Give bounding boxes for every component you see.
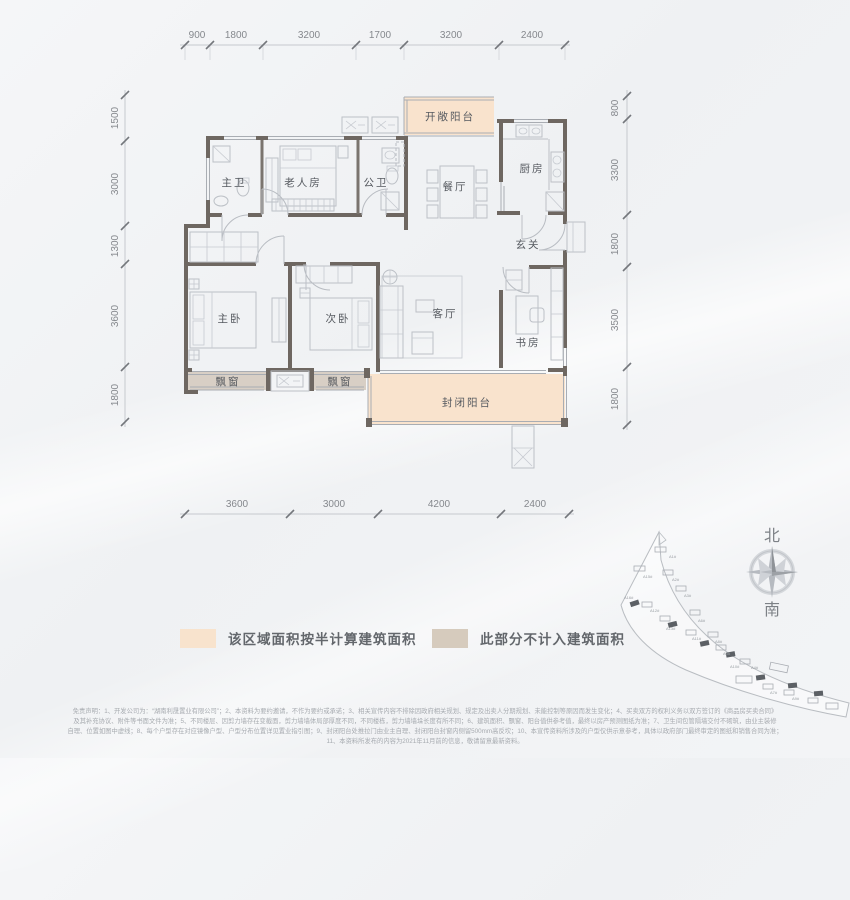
dim-bottom-3: 4200 <box>428 499 451 510</box>
legend-item-excluded: 此部分不计入建筑面积 <box>432 628 625 648</box>
site-building-label: A9# <box>792 696 800 701</box>
floorplan-page: 900 1800 3200 1700 3200 2400 1500 3000 1… <box>0 0 850 758</box>
room-label-study: 书房 <box>516 336 541 349</box>
site-building-label: A16# <box>624 595 634 600</box>
compass: 北 南 <box>746 527 798 619</box>
site-building-label: A10# <box>730 664 740 669</box>
dim-top-6: 2400 <box>521 30 544 41</box>
room-label-closed-balcony: 封闭阳台 <box>442 396 492 409</box>
legend-swatch-excluded <box>432 629 468 648</box>
room-label-kitchen: 厨房 <box>520 162 545 175</box>
dim-left-1: 1500 <box>110 106 121 129</box>
dimension-chain-top: 900 1800 3200 1700 3200 2400 <box>180 30 570 60</box>
dim-right-5: 1800 <box>610 387 621 410</box>
room-label-bay-window-2: 飘窗 <box>328 375 353 388</box>
room-label-dining: 餐厅 <box>443 180 468 193</box>
disclaimer: 免责声明：1、开发公司为：“湖南利晟置业有限公司”；2、本资料为要约邀请，不作为… <box>65 707 785 747</box>
dim-left-4: 3600 <box>110 304 121 327</box>
site-boundary <box>621 532 849 717</box>
dim-bottom-4: 2400 <box>524 499 547 510</box>
dim-bottom-1: 3600 <box>226 499 249 510</box>
dimension-chain-right: 800 3300 1800 3500 1800 <box>610 90 631 430</box>
dim-right-4: 3500 <box>610 308 621 331</box>
room-label-open-balcony: 开敞阳台 <box>425 110 475 123</box>
room-label-foyer: 玄关 <box>516 238 541 251</box>
dimension-chain-bottom: 3600 3000 4200 2400 <box>180 499 574 518</box>
room-label-bay-window-1: 飘窗 <box>216 375 241 388</box>
dim-right-3: 1800 <box>610 232 621 255</box>
site-building-label: A4# <box>751 665 759 670</box>
site-building-label: A12# <box>650 608 660 613</box>
room-label-master-bath: 主卫 <box>222 177 247 189</box>
room-label-master-bedroom: 主卧 <box>218 312 243 325</box>
legend-label-excluded: 此部分不计入建筑面积 <box>480 628 625 648</box>
dim-left-5: 1800 <box>110 383 121 406</box>
compass-south-label: 南 <box>764 601 780 619</box>
disclaimer-line-4: 11、本资料所发布的内容为2021年11月前的信息，敬请留意最新资料。 <box>65 737 785 747</box>
dim-top-1: 900 <box>189 30 206 41</box>
site-building-label: A2# <box>672 577 680 582</box>
legend-label-half-area: 该区域面积按半计算建筑面积 <box>228 628 417 648</box>
dim-top-3: 3200 <box>298 30 321 41</box>
disclaimer-line-2: 及其补充协议、附件等书面文件为准；5、不同楼层、因剪力墙存在变截面，剪力墙墙体局… <box>65 717 785 727</box>
legend: 该区域面积按半计算建筑面积 此部分不计入建筑面积 <box>0 628 850 654</box>
legend-swatch-half-area <box>180 629 216 648</box>
room-label-elder-room: 老人房 <box>284 176 322 189</box>
site-building-label: A15# <box>643 574 653 579</box>
dim-right-1: 800 <box>610 99 621 116</box>
disclaimer-line-1: 免责声明：1、开发公司为：“湖南利晟置业有限公司”；2、本资料为要约邀请，不作为… <box>65 707 785 717</box>
dim-left-2: 3000 <box>110 172 121 195</box>
site-plan: A1# A15# A2# A16# A3# A12# A13# A6# A11#… <box>621 532 849 717</box>
dim-top-5: 3200 <box>440 30 463 41</box>
dim-left-3: 1300 <box>110 234 121 257</box>
dim-bottom-2: 3000 <box>323 499 346 510</box>
legend-item-half-area: 该区域面积按半计算建筑面积 <box>180 628 417 648</box>
dimension-chain-left: 1500 3000 1300 3600 1800 <box>110 90 129 427</box>
dim-top-4: 1700 <box>369 30 392 41</box>
room-label-living-room: 客厅 <box>433 307 458 320</box>
dim-top-2: 1800 <box>225 30 248 41</box>
disclaimer-line-3: 自理、位置如图中虚线；8、每个户型存在对应镜像户型、户型分布位置详见置业指引图；… <box>65 727 785 737</box>
site-building-label: A3# <box>684 593 692 598</box>
entry-landing <box>567 222 585 252</box>
dim-right-2: 3300 <box>610 158 621 181</box>
room-label-second-bedroom: 次卧 <box>326 312 351 325</box>
site-building-label: A1# <box>669 554 677 559</box>
compass-north-label: 北 <box>764 527 780 545</box>
site-building-label: A7# <box>770 690 778 695</box>
site-building-label: A6# <box>698 618 706 623</box>
room-label-public-bath: 公卫 <box>364 177 389 189</box>
